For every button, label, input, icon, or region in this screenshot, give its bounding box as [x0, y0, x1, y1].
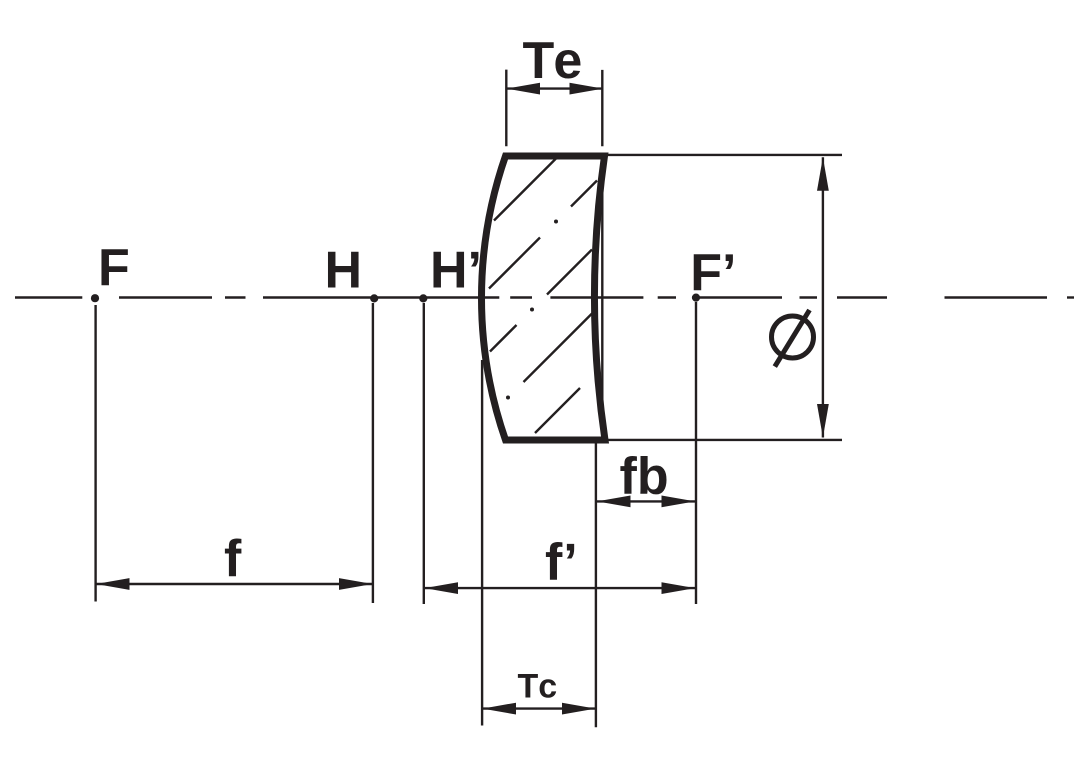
- svg-text:f’: f’: [545, 533, 578, 591]
- svg-text:H’: H’: [430, 242, 482, 300]
- svg-text:H: H: [325, 242, 363, 300]
- svg-text:Te: Te: [523, 32, 586, 90]
- svg-text:F’: F’: [690, 244, 736, 302]
- svg-text:fb: fb: [620, 448, 669, 506]
- svg-text:f: f: [224, 530, 242, 588]
- svg-text:F: F: [98, 239, 130, 297]
- svg-text:Tc: Tc: [518, 668, 560, 706]
